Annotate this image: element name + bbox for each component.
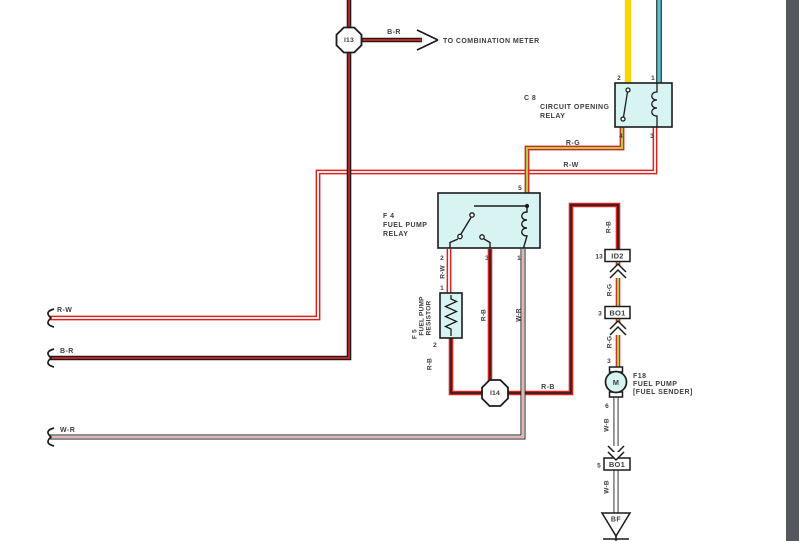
relay-c8 (615, 83, 672, 127)
wire-label-wb2: W-B (604, 480, 611, 494)
c8-pin2: 2 (617, 75, 621, 82)
f4-pin1: 1 (517, 255, 521, 262)
wire-label-wr-vert: W-R (516, 308, 523, 322)
f18-pin3: 3 (607, 358, 611, 365)
junction-i13-label: I13 (344, 37, 354, 44)
connector-bo1-upper-label: BO1 (609, 309, 625, 318)
c8-name-line2: RELAY (540, 113, 565, 120)
right-panel-strip (786, 0, 799, 541)
canvas-background (0, 0, 799, 541)
left-edge-label-br: B-R (60, 348, 74, 355)
wire-label-rb-resistor: R-B (427, 358, 434, 370)
f5-code: F 5 (412, 329, 419, 339)
connector-id2: ID2 (605, 250, 630, 262)
resistor-f5 (440, 293, 462, 338)
f4-pin2: 2 (440, 255, 444, 262)
wire-label-rb-column: R-B (606, 221, 613, 233)
ground-bf-label: BF (611, 517, 622, 524)
to-combination-meter-note: TO COMBINATION METER (443, 38, 540, 45)
connector-bo1-upper-pin: 3 (598, 311, 602, 318)
relay-f4 (438, 193, 540, 248)
c8-pin1: 1 (651, 75, 655, 82)
wire-label-wb1: W-B (604, 418, 611, 432)
f5-name-line1: FUEL PUMP (419, 296, 426, 336)
diagram-canvas: I13 I14 (0, 0, 799, 541)
wire-label-rb-i14: R-B (541, 384, 555, 391)
wiring-diagram-page: I13 I14 (0, 0, 799, 541)
wire-label-rg-column1: R-G (607, 284, 614, 297)
wire-label-rb-vert: R-B (481, 309, 488, 321)
junction-i14: I14 (482, 380, 508, 406)
connector-id2-label: ID2 (611, 252, 624, 261)
f18-pin6: 6 (605, 403, 609, 410)
f18-name-line1: FUEL PUMP (633, 381, 677, 388)
wire-label-rg: R-G (566, 140, 580, 147)
connector-id2-pin: 13 (595, 254, 603, 261)
wire-label-rw-vert: R-W (440, 265, 447, 279)
f18-code: F18 (633, 373, 646, 380)
connector-bo1-upper: BO1 (605, 307, 630, 319)
wire-label-rg-column2: R-G (607, 336, 614, 349)
f4-code: F 4 (383, 213, 394, 220)
junction-i14-label: I14 (490, 390, 500, 397)
connector-bo1-lower-pin: 5 (597, 463, 601, 470)
connector-bo1-lower-label: BO1 (609, 460, 625, 469)
c8-name-line1: CIRCUIT OPENING (540, 104, 609, 111)
c8-pin4: 4 (619, 133, 623, 140)
wire-label-rw: R-W (563, 162, 578, 169)
f4-pin5: 5 (518, 185, 522, 192)
f4-name-line2: RELAY (383, 231, 408, 238)
f5-pin1: 1 (440, 285, 444, 292)
left-edge-label-wr: W-R (60, 427, 75, 434)
wire-label-br-top: B-R (387, 29, 401, 36)
junction-i13: I13 (337, 28, 362, 53)
c8-code: C 8 (524, 95, 536, 102)
f5-pin2: 2 (433, 342, 437, 349)
motor-letter: M (613, 378, 620, 387)
c8-pin3: 3 (650, 133, 654, 140)
f4-pin3: 3 (485, 255, 489, 262)
f18-name-line2: [FUEL SENDER] (633, 389, 693, 396)
f5-name-line2: RESISTOR (426, 301, 433, 336)
left-edge-label-rw: R-W (57, 307, 72, 314)
f4-name-line1: FUEL PUMP (383, 222, 427, 229)
